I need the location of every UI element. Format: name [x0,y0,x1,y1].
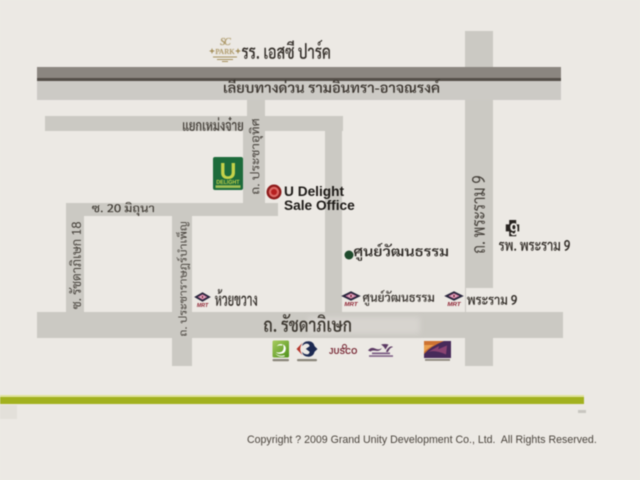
svg-text:MRT: MRT [344,302,359,307]
svg-text:MRT: MRT [447,302,462,307]
svg-text:MRT: MRT [197,303,209,308]
